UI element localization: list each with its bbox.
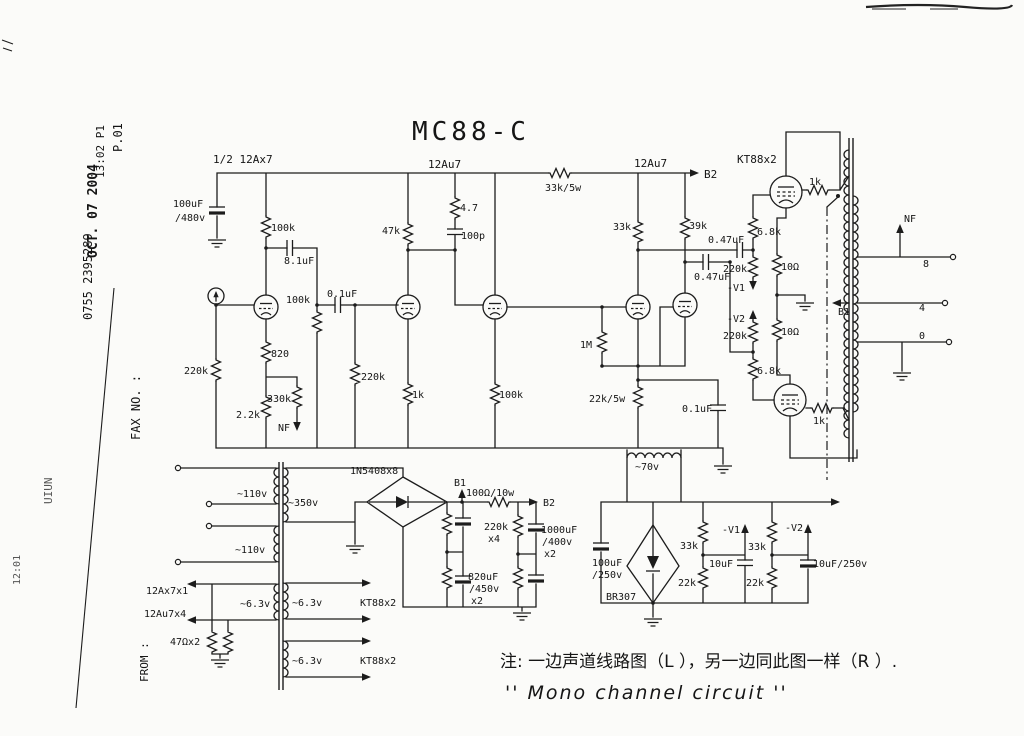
- label-c-biasv: /250v: [592, 570, 622, 581]
- label-r-rail: 33k/5w: [545, 183, 582, 194]
- label-r-gl: 6.8k: [757, 366, 781, 377]
- label-kt88: KT88x2: [737, 153, 777, 166]
- note-chinese: 注: 一边声道线路图（L ），另一边同此图一样（R ）.: [500, 652, 897, 672]
- label-nf-right: NF: [904, 214, 916, 225]
- label-c-b1: 10uF: [709, 559, 733, 570]
- label-br307: BR307: [606, 592, 636, 603]
- label-c-input-f: 100uF: [173, 199, 203, 210]
- label-r-bleed: 220k: [484, 522, 508, 533]
- label-c-couple-u: 0.47uF: [708, 235, 744, 246]
- label-r-b1b: 22k: [678, 578, 696, 589]
- label-c-comp: 8.1uF: [284, 256, 314, 267]
- dashed-link: [827, 197, 838, 480]
- label-r-grid-pi: 1M: [580, 340, 592, 351]
- label-r-gll: 220k: [723, 331, 747, 342]
- label-r-grid2: 220k: [361, 372, 385, 383]
- label-r-in: 220k: [184, 366, 208, 377]
- schematic-title: MC88-C: [412, 117, 530, 147]
- label-r-plate2: 47k: [382, 226, 400, 237]
- label-r-filter: 100Ω/10w: [466, 488, 515, 499]
- fax-no-label: FAX NO. :: [129, 375, 143, 440]
- label-r-gu: 6.8k: [757, 227, 781, 238]
- fax-number: 0755 2395289: [81, 233, 95, 320]
- label-r-cath3: 100k: [499, 390, 523, 401]
- label-r-cath1: 820: [271, 349, 289, 360]
- label-r-nfb: 330k: [267, 394, 291, 405]
- label-b2-ps: B2: [543, 498, 555, 509]
- label-c-f2: 1000uF: [541, 525, 577, 536]
- label-tube2: 12Au7: [428, 158, 461, 171]
- label-tube45: 12Au7: [634, 157, 667, 170]
- label-r-b1a: 33k: [680, 541, 698, 552]
- label-r-bleed-x: x4: [488, 534, 500, 545]
- label-nfb: NF: [278, 423, 290, 434]
- label-b1-ot: B1: [838, 307, 850, 318]
- label-h-t2: 12Au7x4: [144, 609, 186, 620]
- label-r-kl: 10Ω: [781, 327, 799, 338]
- label-v1: -V1: [727, 283, 745, 294]
- label-h63-r1: ~6.3v: [292, 598, 322, 609]
- fax-page: P.01: [111, 123, 125, 152]
- label-r-stop-l: 1k: [813, 416, 825, 427]
- label-c-comp2: 100p: [461, 231, 485, 242]
- scan-artifacts: [2, 5, 1012, 708]
- fax-margin: P.01 OCT. 07 2004 13:02 P1 0755 2395289 …: [12, 123, 151, 682]
- fax-from-label: FROM :: [138, 642, 151, 682]
- label-h63-r2: ~6.3v: [292, 656, 322, 667]
- label-c-f2v: /400v: [542, 537, 572, 548]
- tube-12au7-d: [673, 293, 697, 317]
- label-c-f1v: /450v: [469, 584, 499, 595]
- label-h63-l: ~6.3v: [240, 599, 270, 610]
- label-r-stop-u: 1k: [809, 177, 821, 188]
- note-handwritten: '' Mono channel circuit '': [505, 682, 788, 704]
- label-r-cath1b: 2.2k: [236, 410, 260, 421]
- fax-scanned-schematic: MC88-C 1/2 12Ax7 12Au7 12Au7 KT88x2 B2 1…: [0, 0, 1024, 736]
- label-v2-b: -V2: [785, 523, 803, 534]
- label-tap4: 4: [919, 303, 925, 314]
- label-r-plate-pi2: 39k: [689, 221, 707, 232]
- tube-kt88-lower: [774, 384, 806, 416]
- label-h-kt1: KT88x2: [360, 598, 396, 609]
- schematic-canvas: MC88-C 1/2 12Ax7 12Au7 12Au7 KT88x2 B2 1…: [0, 0, 1024, 736]
- label-r-plate-pi1: 33k: [613, 222, 631, 233]
- label-r-b2a: 33k: [748, 542, 766, 553]
- label-c-decouple: 0.1uF: [682, 404, 712, 415]
- label-r-glu: 220k: [723, 264, 747, 275]
- label-mains1: ~110v: [237, 489, 267, 500]
- label-r-ku: 10Ω: [781, 262, 799, 273]
- power-transformer: [274, 462, 288, 690]
- label-c-f1: 820uF: [468, 572, 498, 583]
- label-c-input-fv: /480v: [175, 213, 205, 224]
- label-r-fb: 100k: [286, 295, 310, 306]
- tube-kt88-upper: [770, 176, 802, 208]
- label-c-b2: 10uF/250v: [813, 559, 867, 570]
- label-hv-sec: ~350v: [288, 498, 318, 509]
- label-r-comp: 4.7: [460, 203, 478, 214]
- label-tap8: 8: [923, 259, 929, 270]
- label-r-b2b: 22k: [746, 578, 764, 589]
- label-tube1: 1/2 12Ax7: [213, 153, 273, 166]
- label-c-bias: 100uF: [592, 558, 622, 569]
- label-h-t1: 12Ax7x1: [146, 586, 188, 597]
- fax-time-page: 13:02 P1: [94, 125, 107, 178]
- fax-fragment: 12:01: [12, 555, 23, 585]
- bias-winding: [627, 453, 681, 458]
- label-v1-b: -V1: [722, 525, 740, 536]
- tube-12au7-a: [396, 295, 420, 319]
- label-v2: -V2: [727, 314, 745, 325]
- bridge-rectifier-1n5408: [367, 477, 447, 527]
- label-h-hum: 47Ωx2: [170, 637, 200, 648]
- label-bias-w: ~70v: [635, 462, 659, 473]
- label-r-tail: 22k/5w: [589, 394, 626, 405]
- label-r-plate1: 100k: [271, 223, 295, 234]
- label-bridge1: 1N5408x8: [350, 466, 398, 477]
- label-c-f1x: x2: [471, 596, 483, 607]
- tube-12ax7: [254, 295, 278, 319]
- label-mains2: ~110v: [235, 545, 265, 556]
- label-b2-top: B2: [704, 168, 717, 181]
- tube-12au7-c: [626, 295, 650, 319]
- label-b1-ps: B1: [454, 478, 466, 489]
- label-r-cath2: 1k: [412, 390, 424, 401]
- tube-12au7-b: [483, 295, 507, 319]
- fax-corner-note: UIUN: [42, 478, 55, 505]
- label-tap0: 0: [919, 331, 925, 342]
- label-c-couple1: 0.1uF: [327, 289, 357, 300]
- label-c-f2x: x2: [544, 549, 556, 560]
- label-h-kt2: KT88x2: [360, 656, 396, 667]
